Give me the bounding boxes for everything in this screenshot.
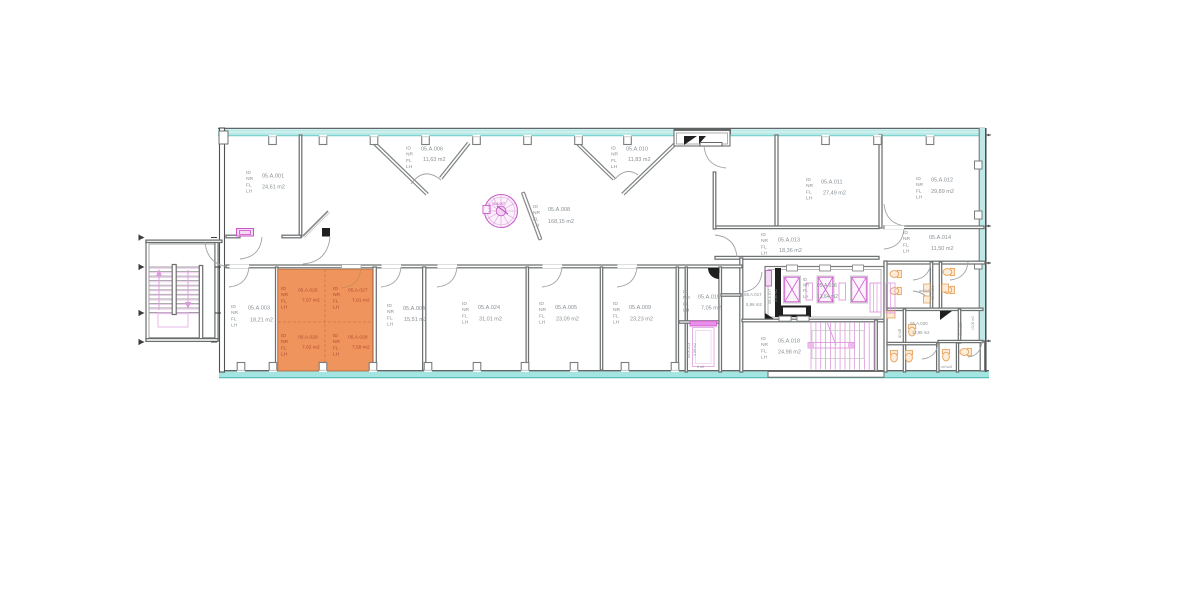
- svg-text:FL: FL: [903, 242, 909, 248]
- svg-text:ID: ID: [761, 336, 766, 342]
- svg-text:a≤½≤5: a≤½≤5: [919, 289, 930, 293]
- svg-text:05.A.001: 05.A.001: [262, 174, 284, 180]
- svg-text:LH: LH: [333, 305, 340, 311]
- svg-text:23,09 m2: 23,09 m2: [556, 317, 579, 323]
- svg-text:ID: ID: [333, 333, 338, 339]
- svg-text:05.A.009: 05.A.009: [629, 305, 651, 311]
- svg-text:NR: NR: [281, 339, 289, 345]
- svg-text:NR: NR: [539, 307, 547, 313]
- svg-text:NR: NR: [903, 236, 911, 242]
- svg-text:FL: FL: [333, 298, 339, 304]
- svg-text:NR: NR: [333, 339, 341, 345]
- svg-text:ID: ID: [462, 301, 467, 307]
- svg-text:05.A.008: 05.A.008: [548, 207, 570, 213]
- svg-text:05.A.007: 05.A.007: [492, 202, 505, 206]
- svg-text:31,01 m2: 31,01 m2: [479, 317, 502, 323]
- svg-text:NR: NR: [761, 342, 769, 348]
- svg-text:4,59 m2: 4,59 m2: [693, 343, 697, 356]
- svg-text:ID: ID: [539, 301, 544, 307]
- svg-text:13,05 m2: 13,05 m2: [971, 316, 975, 330]
- svg-text:LH: LH: [539, 320, 546, 326]
- svg-text:LH: LH: [246, 189, 253, 195]
- svg-text:LH: LH: [611, 164, 618, 170]
- svg-text:FL: FL: [806, 189, 812, 195]
- svg-text:ID: ID: [533, 204, 538, 210]
- svg-text:13,64 m2: 13,64 m2: [817, 294, 838, 300]
- svg-text:05.A.013: 05.A.013: [778, 238, 800, 244]
- svg-text:05.A.006: 05.A.006: [421, 147, 443, 153]
- svg-text:LH: LH: [613, 320, 620, 326]
- svg-text:FL: FL: [333, 345, 339, 351]
- svg-text:FL: FL: [406, 158, 412, 164]
- svg-text:LH: LH: [231, 323, 238, 329]
- svg-text:LH: LH: [761, 355, 768, 361]
- svg-text:7,62 m2: 7,62 m2: [302, 345, 320, 351]
- svg-text:LH: LH: [803, 294, 808, 299]
- svg-text:7,57 m2: 7,57 m2: [302, 298, 320, 304]
- svg-text:ID: ID: [806, 177, 811, 183]
- svg-text:FL: FL: [683, 301, 689, 307]
- svg-text:ID: ID: [231, 304, 236, 310]
- svg-text:05.A.018: 05.A.018: [778, 339, 800, 345]
- svg-text:168,15 m2: 168,15 m2: [548, 219, 574, 225]
- svg-text:NR: NR: [916, 182, 924, 188]
- svg-text:NR: NR: [246, 176, 254, 182]
- svg-text:27,49 m2: 27,49 m2: [823, 191, 846, 197]
- svg-text:LH: LH: [916, 195, 923, 201]
- svg-text:ID: ID: [611, 146, 616, 152]
- svg-text:05.A.005: 05.A.005: [555, 305, 577, 311]
- svg-text:05.A.026: 05.A.026: [298, 288, 318, 294]
- svg-text:FL: FL: [533, 216, 539, 222]
- svg-text:0·≤5: 0·≤5: [697, 365, 704, 369]
- svg-text:05.A.028: 05.A.028: [348, 335, 368, 341]
- svg-text:ID: ID: [387, 303, 392, 309]
- svg-text:FL: FL: [246, 182, 252, 188]
- svg-text:05.A.024: 05.A.024: [478, 305, 500, 311]
- svg-text:ID: ID: [281, 333, 286, 339]
- svg-text:LH: LH: [333, 352, 340, 358]
- svg-text:FL: FL: [281, 298, 287, 304]
- svg-text:05.A.016: 05.A.016: [817, 283, 837, 289]
- svg-text:LH: LH: [806, 196, 813, 202]
- svg-text:7,58 m2: 7,58 m2: [352, 345, 370, 351]
- svg-text:FL: FL: [613, 313, 619, 319]
- svg-text:LH: LH: [387, 322, 394, 328]
- svg-text:FL: FL: [462, 313, 468, 319]
- svg-text:o≤¾≤5: o≤¾≤5: [941, 365, 952, 369]
- svg-text:NR: NR: [803, 283, 809, 288]
- svg-text:FL: FL: [611, 158, 617, 164]
- svg-text:NR: NR: [613, 307, 621, 313]
- svg-text:FL: FL: [761, 244, 767, 250]
- svg-text:05.A.010: 05.A.010: [626, 147, 648, 153]
- svg-text:LH: LH: [462, 320, 469, 326]
- svg-text:05.A.014: 05.A.014: [929, 235, 951, 241]
- svg-text:05.A.022: 05.A.022: [959, 322, 963, 336]
- svg-text:ID: ID: [803, 277, 807, 282]
- svg-text:05.A.017: 05.A.017: [768, 289, 772, 304]
- svg-text:NR: NR: [533, 210, 541, 216]
- svg-text:NR: NR: [806, 183, 814, 189]
- svg-text:ID: ID: [683, 289, 688, 295]
- svg-text:NR: NR: [611, 152, 619, 158]
- svg-text:LH: LH: [281, 305, 288, 311]
- svg-text:LH: LH: [281, 352, 288, 358]
- svg-text:11,63 m2: 11,63 m2: [423, 157, 446, 163]
- svg-text:ID: ID: [761, 232, 766, 238]
- svg-text:ID NR: ID NR: [898, 328, 902, 338]
- svg-text:24,98 m2: 24,98 m2: [778, 350, 801, 356]
- svg-text:5,96 m2: 5,96 m2: [774, 289, 778, 302]
- svg-text:05.A.011: 05.A.011: [821, 180, 843, 186]
- svg-text:24,61 m2: 24,61 m2: [262, 185, 285, 191]
- svg-text:1,13: 1,13: [488, 206, 492, 212]
- svg-text:ID: ID: [916, 176, 921, 182]
- svg-text:15,51 m2: 15,51 m2: [404, 317, 427, 323]
- svg-text:LH: LH: [903, 249, 910, 255]
- svg-text:FL: FL: [281, 345, 287, 351]
- svg-text:12,95 m2: 12,95 m2: [912, 330, 930, 335]
- svg-text:NR: NR: [231, 310, 239, 316]
- svg-text:29,89 m2: 29,89 m2: [931, 189, 954, 195]
- svg-text:ID: ID: [246, 170, 251, 176]
- svg-text:FL: FL: [539, 313, 545, 319]
- svg-text:LH: LH: [406, 164, 413, 170]
- svg-text:FL: FL: [387, 315, 393, 321]
- svg-text:ID: ID: [903, 230, 908, 236]
- svg-text:05.A.012: 05.A.012: [931, 178, 953, 184]
- svg-text:FL: FL: [916, 188, 922, 194]
- svg-text:FL: FL: [803, 288, 809, 293]
- svg-text:NR: NR: [333, 292, 341, 298]
- svg-text:LH: LH: [761, 251, 768, 257]
- svg-text:05.A.020: 05.A.020: [910, 321, 928, 326]
- svg-text:FL: FL: [761, 348, 767, 354]
- svg-text:NR: NR: [761, 238, 769, 244]
- svg-text:7,61 m2: 7,61 m2: [352, 298, 370, 304]
- svg-text:5,96 m2: 5,96 m2: [746, 302, 762, 307]
- svg-text:05.A.003: 05.A.003: [248, 306, 270, 312]
- svg-text:ID: ID: [281, 286, 286, 292]
- svg-text:05.A.021: 05.A.021: [931, 286, 935, 300]
- svg-text:11,50 m2: 11,50 m2: [931, 246, 954, 252]
- svg-text:NR: NR: [387, 309, 395, 315]
- svg-text:05.A.015: 05.A.015: [698, 295, 720, 301]
- svg-text:7,05 m2: 7,05 m2: [701, 306, 721, 312]
- svg-text:05.A.029: 05.A.029: [298, 335, 318, 341]
- svg-text:ID: ID: [613, 301, 618, 307]
- svg-text:ID: ID: [406, 146, 411, 152]
- svg-text:NR: NR: [683, 295, 691, 301]
- svg-text:NR: NR: [462, 307, 470, 313]
- svg-text:LH: LH: [533, 223, 540, 229]
- svg-text:NR: NR: [406, 152, 414, 158]
- svg-text:ID: ID: [333, 286, 338, 292]
- svg-text:05.A.027: 05.A.027: [348, 288, 368, 294]
- svg-text:05.A.017: 05.A.017: [744, 292, 762, 297]
- svg-text:23,23 m2: 23,23 m2: [630, 317, 653, 323]
- svg-text:NR: NR: [281, 292, 289, 298]
- svg-text:LH: LH: [683, 308, 690, 314]
- svg-text:18,36 m2: 18,36 m2: [779, 248, 802, 254]
- svg-text:11,83 m2: 11,83 m2: [628, 157, 651, 163]
- svg-text:05.A.013: 05.A.013: [687, 343, 691, 358]
- svg-text:05.A.004: 05.A.004: [403, 306, 425, 312]
- svg-text:18,21 m2: 18,21 m2: [250, 318, 273, 324]
- svg-text:FL: FL: [231, 316, 237, 322]
